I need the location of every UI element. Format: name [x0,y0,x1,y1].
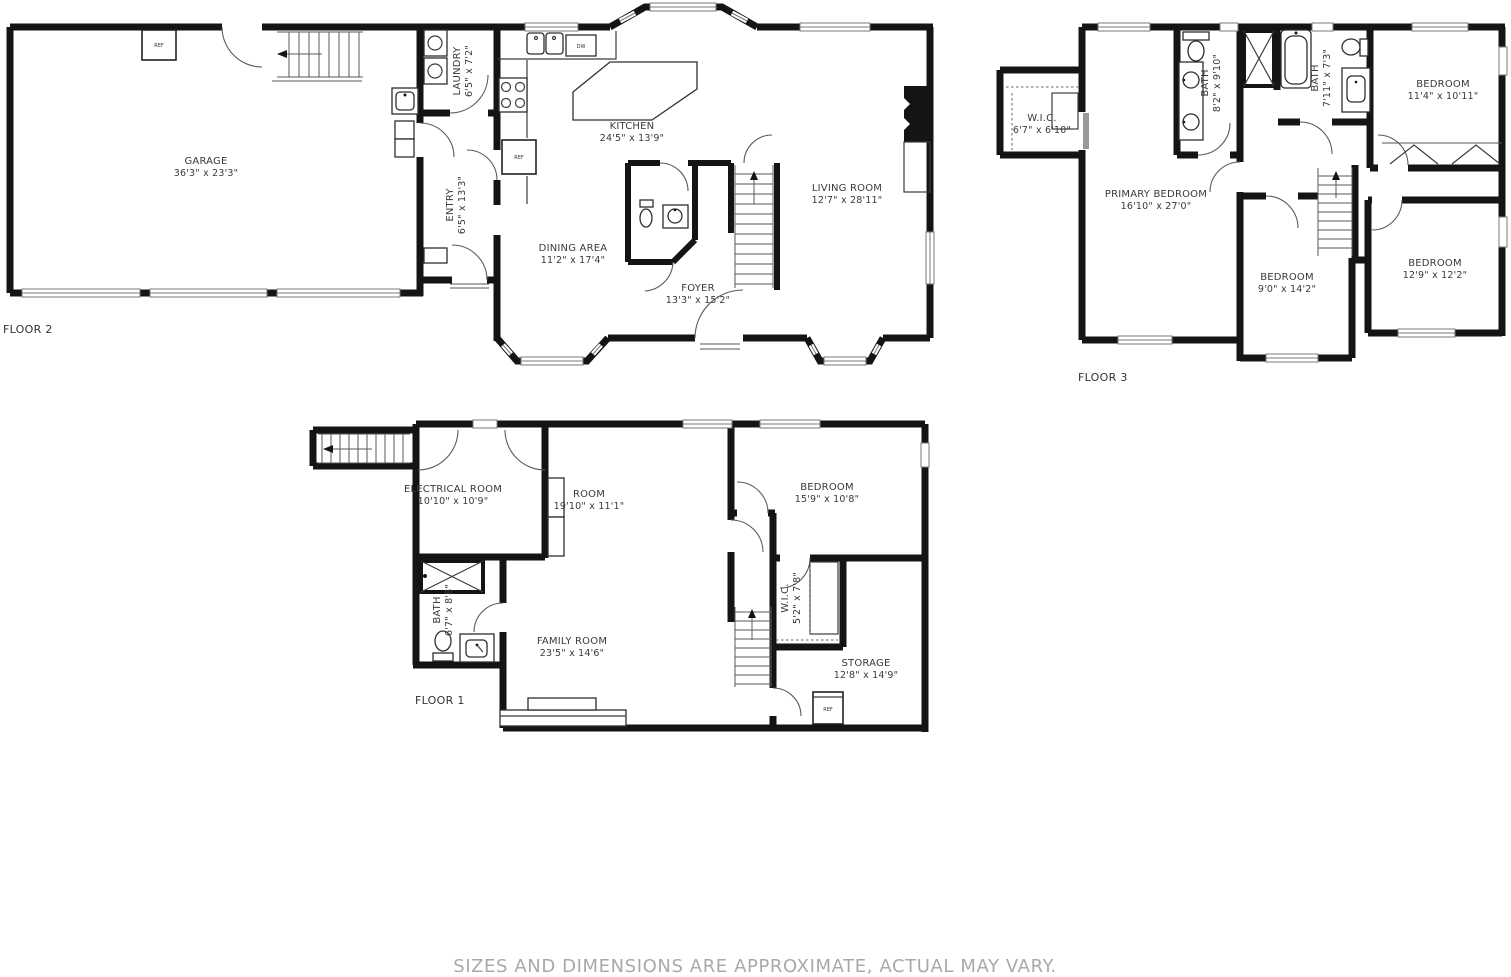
bedroom-mid-dims: 9'0" x 14'2" [1258,284,1316,295]
wic3-label: W.I.C. [1027,113,1056,124]
dining-dims: 11'2" x 17'4" [541,255,606,266]
foyer-label: FOYER [681,283,714,294]
svg-text:7'11" x 7'3": 7'11" x 7'3" [1322,49,1333,107]
dining-label: DINING AREA [539,243,608,254]
foyer-dims: 13'3" x 15'2" [666,295,731,306]
powder-toilet-icon [640,200,653,227]
floor2-interior-walls [628,163,777,290]
bedroom-tr-label: BEDROOM [1416,79,1470,90]
living-label: LIVING ROOM [812,183,882,194]
refrigerator-garage: REF [142,30,176,60]
bedroom-br-dims: 12'9" x 12'2" [1403,270,1468,281]
bedroom-mid-label: BEDROOM [1260,272,1314,283]
bedroom-f1-dims: 15'9" x 10'8" [795,494,860,505]
room-label: ROOM [573,489,605,500]
floor3-tag: FLOOR 3 [1078,371,1128,384]
bedroom-f1-label: BEDROOM [800,482,854,493]
floor-2-plan: REF DW REF GARA [3,3,934,365]
electrical-room-dims: 10'10" x 10'9" [418,496,489,507]
foyer-stairs-icon [735,165,773,288]
floor1-stairs-icon [735,607,771,687]
floor2-tag: FLOOR 2 [3,323,53,336]
powder-sink-icon [663,205,688,228]
closet-bifold-doors [1382,143,1502,164]
room-dims: 19'10" x 11'1" [554,501,625,512]
svg-text:W.I.C.: W.I.C. [780,583,791,612]
sofa-icon [500,698,626,726]
bath2-label: BATH 7'11" x 7'3" [1310,49,1333,107]
kitchen-island [573,62,697,120]
floor1-tag: FLOOR 1 [415,694,465,707]
ref-label: REF [154,43,164,49]
svg-text:5'2" x 7'8": 5'2" x 7'8" [792,572,803,624]
disclaimer-text: SIZES AND DIMENSIONS ARE APPROXIMATE, AC… [453,956,1057,977]
electrical-room-label: ELECTRICAL ROOM [404,484,502,495]
ref-label: REF [823,707,833,713]
svg-text:ENTRY: ENTRY [445,188,456,222]
primary-bedroom-label: PRIMARY BEDROOM [1105,189,1207,200]
storage-dims: 12'8" x 14'9" [834,670,899,681]
shower-icon [1244,31,1274,86]
storage-label: STORAGE [841,658,890,669]
svg-text:6'7" x 8'8": 6'7" x 8'8" [444,584,455,636]
stove-icon [499,78,527,112]
garage-stairs-icon [272,32,363,81]
floor-3-plan: W.I.C. 6'7" x 6'10" BATH 8'2" x 9'10" BA… [1000,23,1507,384]
svg-text:BATH: BATH [432,596,443,623]
wic3-dims: 6'7" x 6'10" [1013,125,1071,136]
refrigerator-kitchen: REF [502,140,536,174]
floor1-sink-icon [460,634,494,662]
garage-dims: 36'3" x 23'3" [174,168,239,179]
wic-f1-label: W.I.C. 5'2" x 7'8" [780,572,803,624]
floor1-entry-stairs-icon [318,434,410,463]
refrigerator-storage: REF [813,692,843,724]
svg-text:8'2" x 9'10": 8'2" x 9'10" [1212,54,1223,112]
primary-bedroom-dims: 16'10" x 27'0" [1121,201,1192,212]
floor1-walls [313,424,925,732]
ref-label: REF [514,155,524,161]
entry-label: ENTRY 6'5" x 13'3" [445,176,468,234]
svg-text:LAUNDRY: LAUNDRY [452,46,463,96]
kitchen-dims: 24'5" x 13'9" [600,133,665,144]
family-room-label: FAMILY ROOM [537,636,607,647]
living-dims: 12'7" x 28'11" [812,195,883,206]
fireplace-icon [904,86,930,192]
svg-text:6'5" x 7'2": 6'5" x 7'2" [464,45,475,97]
svg-text:BATH: BATH [1200,69,1211,96]
floorplan-page: REF DW REF GARA [0,0,1511,977]
utility-sink-icon [392,88,418,157]
bedroom-br-label: BEDROOM [1408,258,1462,269]
floor3-stairs-icon [1318,168,1352,256]
floor-1-plan: REF ELECTRICAL ROOM 10'10" x 10'9" ROOM … [313,420,929,732]
garage-label: GARAGE [184,156,227,167]
washer-dryer-icon [424,30,447,263]
shelf-cabinet-icon [548,478,564,556]
laundry-label: LAUNDRY 6'5" x 7'2" [452,45,475,97]
dishwasher-label: DW [577,44,586,50]
garage-door-panels [22,289,400,297]
floorplan-drawing: REF DW REF GARA [0,0,1511,977]
kitchen-label: KITCHEN [610,121,655,132]
svg-text:BATH: BATH [1310,64,1321,91]
bedroom-tr-dims: 11'4" x 10'11" [1408,91,1479,102]
svg-text:6'5" x 13'3": 6'5" x 13'3" [457,176,468,234]
floor3-door-arcs [1198,122,1408,230]
family-room-dims: 23'5" x 14'6" [540,648,605,659]
